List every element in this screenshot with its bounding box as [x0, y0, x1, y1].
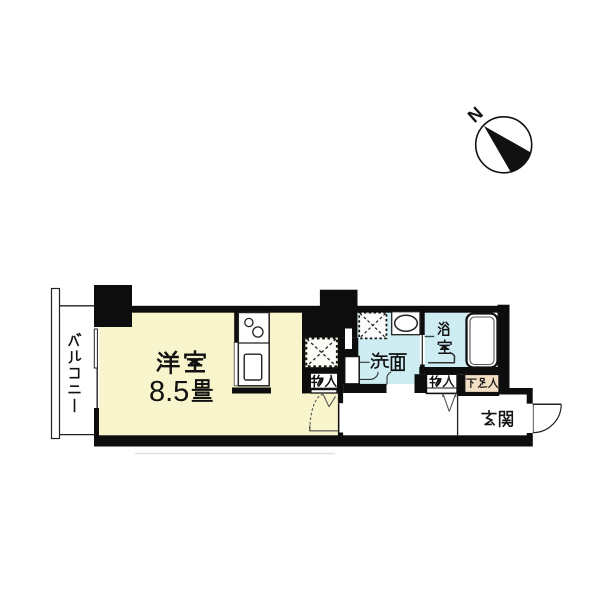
svg-text:8.5: 8.5 [149, 376, 189, 408]
